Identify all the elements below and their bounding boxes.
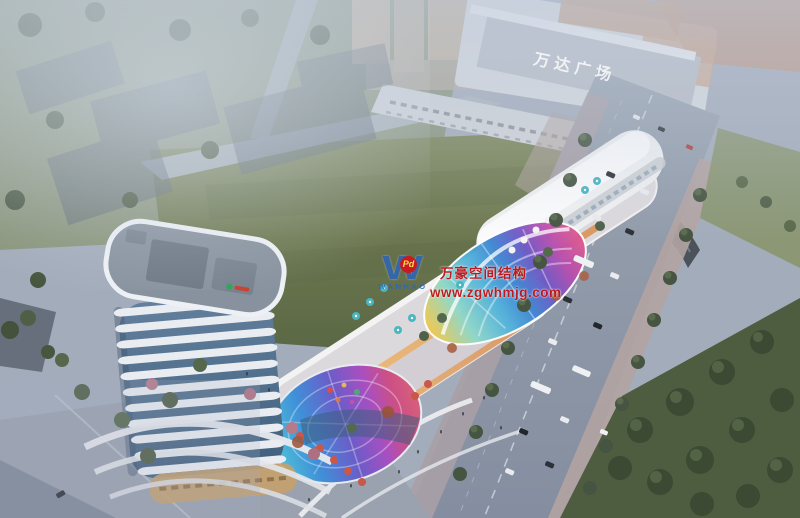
haze-topleft	[0, 0, 430, 290]
wanhao-logo-icon: W Pd WANHAO	[366, 254, 440, 291]
watermark: W Pd WANHAO 万豪空间结构 www.zgwhmjg.com	[356, 248, 606, 320]
haze-bottomleft	[0, 380, 260, 518]
watermark-text: 万豪空间结构 www.zgwhmjg.com	[440, 262, 562, 300]
watermark-company: 万豪空间结构	[440, 262, 562, 282]
wanhao-brand-text: WANHAO	[366, 282, 440, 291]
wanhao-badge-icon: Pd	[400, 256, 417, 273]
aerial-rendering: 万达广场 W Pd WANHAO 万豪空间结构 www.zgwhmjg.com	[0, 0, 800, 518]
watermark-url: www.zgwhmjg.com	[430, 285, 562, 300]
